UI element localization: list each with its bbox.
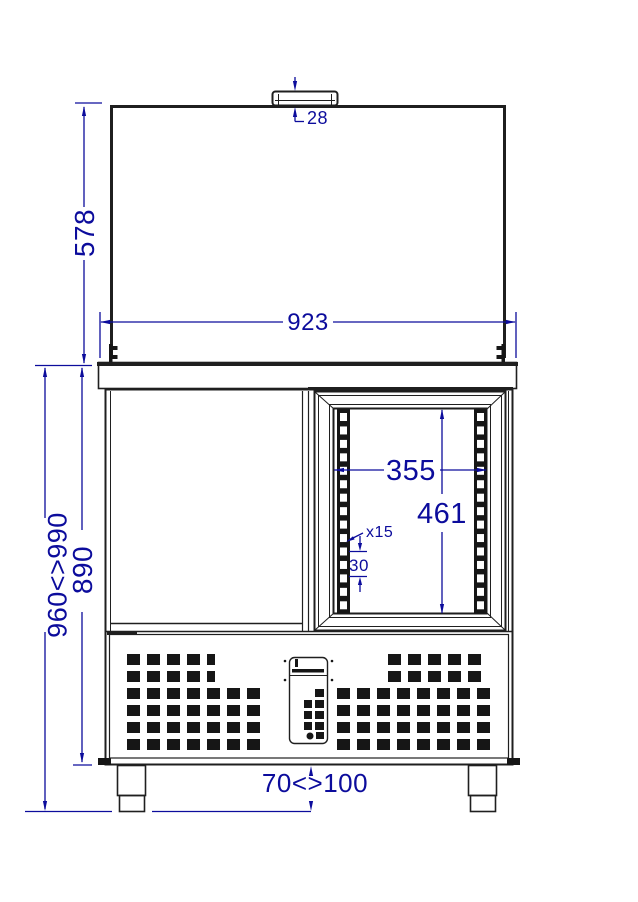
slot [477, 413, 484, 421]
slot [477, 453, 484, 461]
slot [147, 654, 160, 665]
slot [167, 722, 180, 733]
dim-label-lid-height: 578 [69, 209, 100, 257]
dim-label-feet-height: 70<>100 [262, 768, 368, 798]
slot [340, 534, 347, 542]
slot [227, 705, 240, 716]
slot [457, 688, 470, 699]
dim-label-opening-height: 461 [417, 498, 467, 530]
slot [397, 722, 410, 733]
shelf-rail-right [474, 410, 487, 614]
dim-label-overall-width: 923 [287, 309, 329, 336]
panel-brand-strip [292, 669, 324, 673]
dim-label-body-height: 890 [67, 546, 98, 594]
dim-label-shelf-pitch: 30 [349, 556, 369, 575]
shelf-rail-right-slots [477, 413, 484, 609]
dim-feet-height: 70<>100 [25, 766, 368, 812]
slot [337, 688, 350, 699]
slot [408, 671, 421, 682]
slot [127, 722, 140, 733]
slot [417, 722, 430, 733]
technical-drawing-canvas: 578 28 923 960<>990 890 [0, 0, 638, 902]
slot [377, 722, 390, 733]
lid-handle [273, 92, 338, 106]
slot [357, 705, 370, 716]
dim-label-handle-height: 28 [307, 108, 328, 128]
slot [340, 453, 347, 461]
slot [388, 671, 401, 682]
slot [477, 426, 484, 434]
dim-opening-height: 461 [417, 409, 467, 614]
slot [167, 739, 180, 750]
slot [167, 654, 180, 665]
slot [340, 561, 347, 569]
panel-logo-mark [295, 659, 298, 667]
slot [340, 413, 347, 421]
slot [437, 705, 450, 716]
slot [340, 574, 347, 582]
slot [187, 654, 200, 665]
slot [377, 705, 390, 716]
slot [477, 601, 484, 609]
slot [457, 705, 470, 716]
slot [167, 705, 180, 716]
slot [147, 688, 160, 699]
slot [437, 739, 450, 750]
slot [247, 688, 260, 699]
slot [207, 739, 220, 750]
slot [448, 671, 461, 682]
slot [207, 688, 220, 699]
slot [167, 688, 180, 699]
slot [357, 722, 370, 733]
slot [147, 705, 160, 716]
hinge-left [109, 344, 118, 362]
slot [437, 688, 450, 699]
dim-shelf-pitch: 30 [349, 536, 369, 592]
slot [477, 705, 490, 716]
slot [207, 671, 215, 682]
slot [127, 654, 140, 665]
dim-opening-width: 355 [334, 455, 487, 487]
dim-label-shelf-positions: x15 [366, 524, 393, 541]
slot [207, 654, 215, 665]
slot [127, 688, 140, 699]
shelf-rail-left-slots [340, 413, 347, 609]
slot [437, 722, 450, 733]
slot [340, 426, 347, 434]
slot [477, 588, 484, 596]
slot [408, 654, 421, 665]
dim-shelf-positions: x15 [346, 524, 393, 542]
slot [477, 494, 484, 502]
slot [337, 722, 350, 733]
slot [127, 739, 140, 750]
blast-chiller-front-view: 578 28 923 960<>990 890 [0, 0, 638, 902]
slot [147, 739, 160, 750]
slot [477, 574, 484, 582]
slot [227, 722, 240, 733]
slot [457, 739, 470, 750]
slot [477, 688, 490, 699]
slot [417, 705, 430, 716]
slot [388, 654, 401, 665]
slot [340, 440, 347, 448]
slot [477, 480, 484, 488]
dim-overall-width: 923 [100, 309, 516, 358]
slot [340, 588, 347, 596]
slot [187, 739, 200, 750]
slot [227, 688, 240, 699]
slot [147, 722, 160, 733]
worktop [97, 363, 518, 389]
slot [340, 601, 347, 609]
slot [457, 722, 470, 733]
slot [187, 705, 200, 716]
slot [187, 671, 200, 682]
slot [337, 739, 350, 750]
dim-lid-height: 578 [69, 103, 102, 364]
slot [340, 480, 347, 488]
slot [417, 688, 430, 699]
control-panel [284, 658, 334, 744]
slot [428, 654, 441, 665]
slot [477, 561, 484, 569]
dim-handle-height: 28 [293, 77, 328, 128]
slot [477, 739, 490, 750]
slot [357, 739, 370, 750]
slot [468, 671, 481, 682]
slot [247, 739, 260, 750]
slot [477, 534, 484, 542]
slot [187, 722, 200, 733]
slot [340, 494, 347, 502]
vent-grille-panel [110, 635, 509, 759]
slot [247, 705, 260, 716]
slot [227, 739, 240, 750]
slot [207, 722, 220, 733]
slot [340, 548, 347, 556]
slot [357, 688, 370, 699]
slot [167, 671, 180, 682]
panel-buttons [304, 689, 324, 740]
hinge-right [497, 344, 506, 362]
slot [127, 671, 140, 682]
slot [397, 739, 410, 750]
foot-left [118, 766, 146, 812]
slot [147, 671, 160, 682]
slot [477, 440, 484, 448]
slot [397, 705, 410, 716]
slot [187, 688, 200, 699]
shelf-rail-left [337, 410, 350, 614]
slot [127, 705, 140, 716]
dim-body-height: 890 [67, 367, 98, 765]
slot [340, 521, 347, 529]
slot [207, 705, 220, 716]
dim-label-opening-width: 355 [386, 455, 436, 487]
slot [468, 654, 481, 665]
slot [397, 688, 410, 699]
slot [428, 671, 441, 682]
slot [477, 722, 490, 733]
slot [337, 705, 350, 716]
foot-right [469, 766, 497, 812]
left-door-panel [111, 391, 309, 631]
slot [417, 739, 430, 750]
slot [477, 507, 484, 515]
slot [477, 548, 484, 556]
slot [448, 654, 461, 665]
slot [340, 507, 347, 515]
slot [477, 521, 484, 529]
slot [377, 688, 390, 699]
slot [247, 722, 260, 733]
slot [377, 739, 390, 750]
